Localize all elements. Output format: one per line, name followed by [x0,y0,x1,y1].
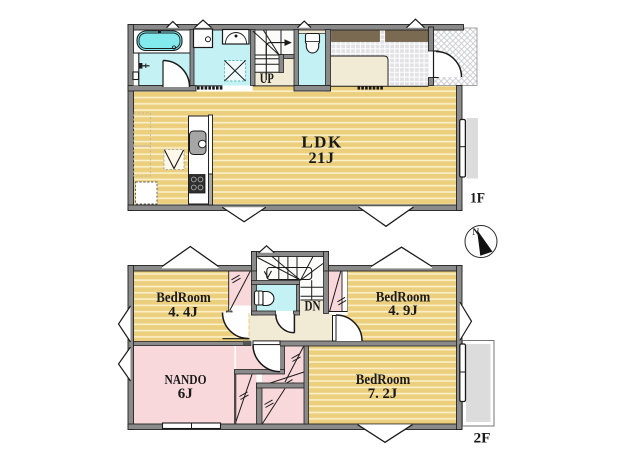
svg-text:7. 2J: 7. 2J [368,386,398,402]
svg-text:4. 9J: 4. 9J [388,303,418,319]
svg-text:1F: 1F [470,191,485,207]
svg-text:4. 4J: 4. 4J [168,305,198,321]
svg-text:DN: DN [305,299,321,315]
svg-text:2F: 2F [474,431,491,447]
svg-text:6J: 6J [178,385,193,402]
svg-text:UP: UP [260,71,274,87]
svg-text:21J: 21J [309,148,335,167]
svg-text:N: N [472,228,479,238]
